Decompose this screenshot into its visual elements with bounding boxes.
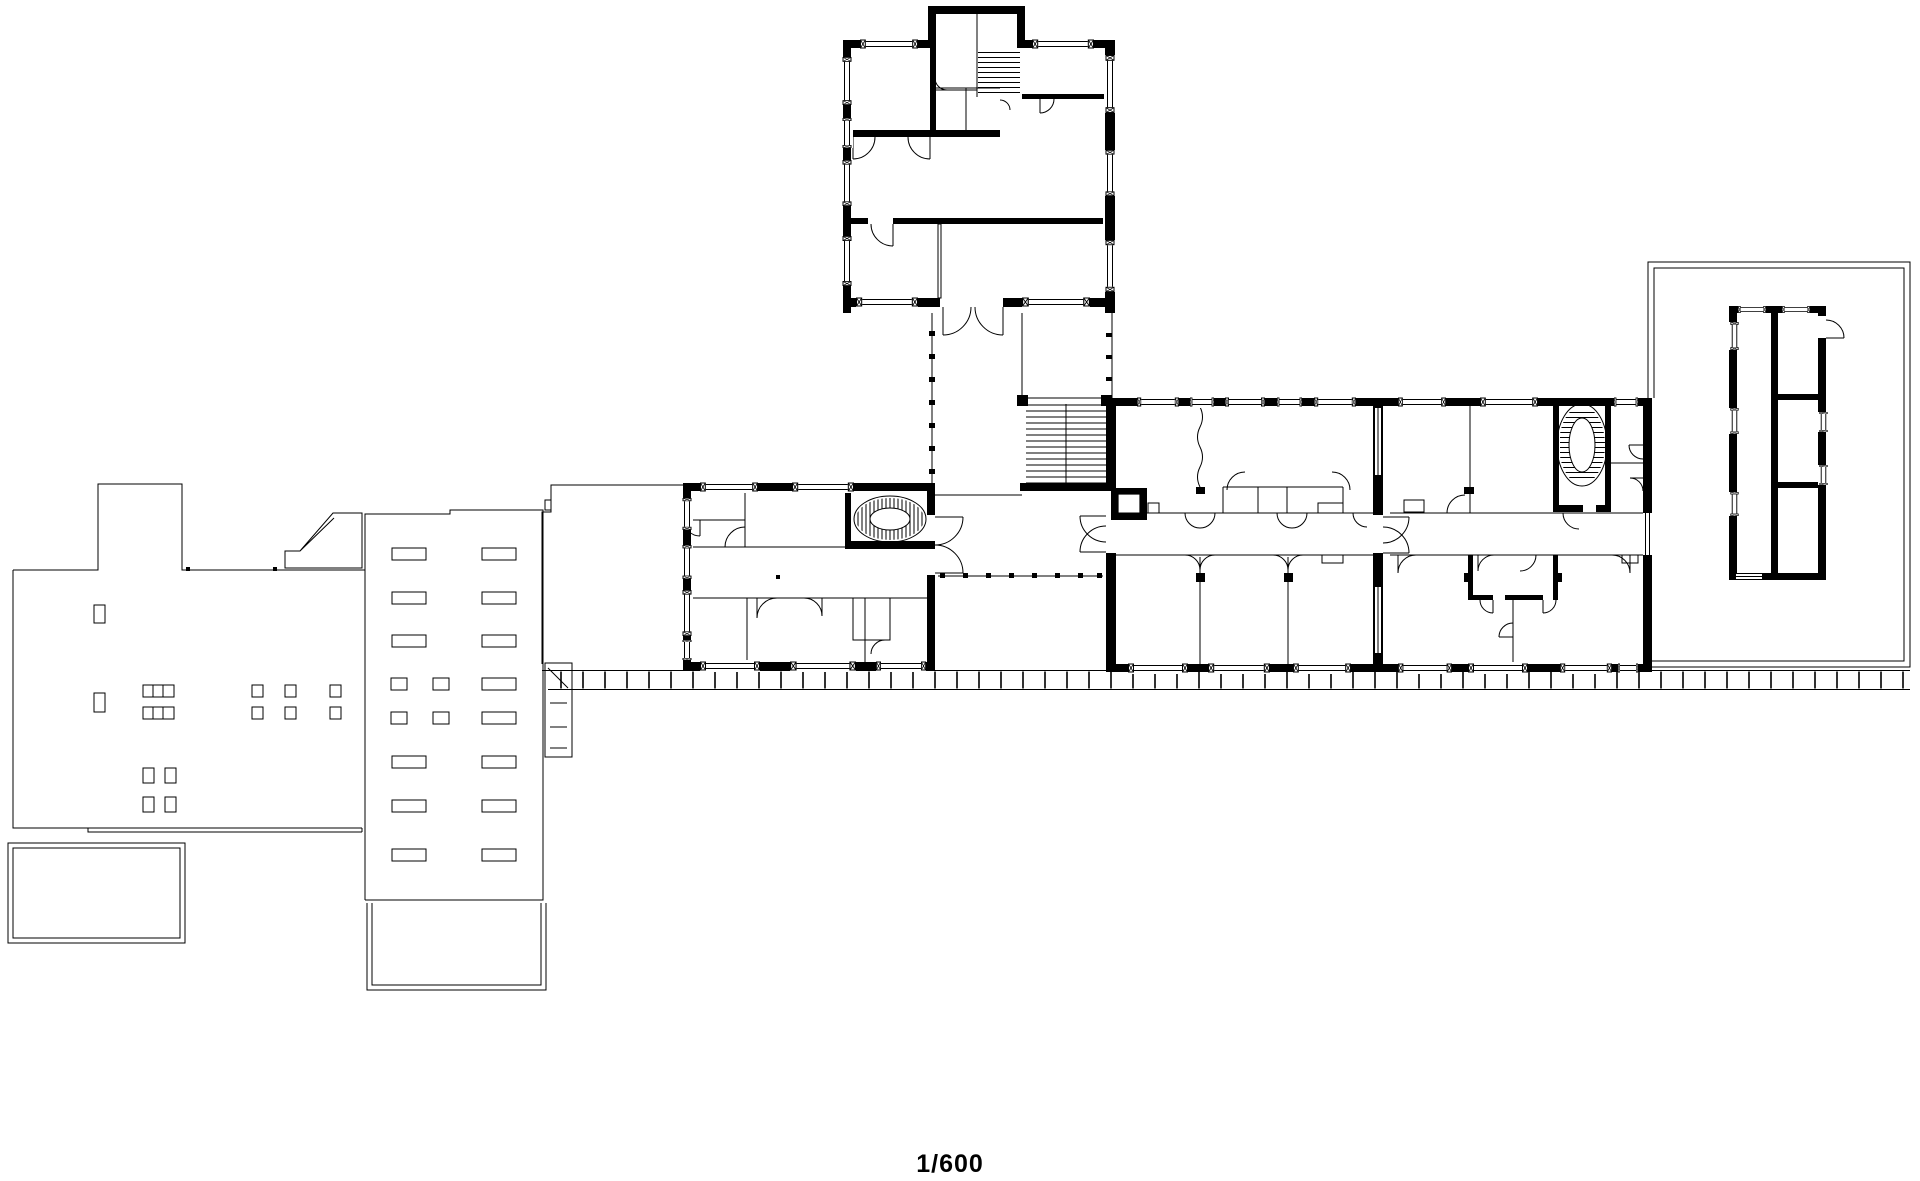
east-classroom-block <box>1383 396 1652 674</box>
elevator <box>1111 488 1147 520</box>
courtyard-outbuilding <box>1729 305 1844 580</box>
oval-staircase-west <box>845 491 935 549</box>
north-pavilion <box>841 6 1116 335</box>
west-terrace <box>542 485 683 664</box>
access-ramp <box>285 513 362 568</box>
east-courtyard <box>1648 262 1910 667</box>
floor-plan-drawing <box>0 0 1920 1181</box>
roof-stair-shaft <box>928 6 1025 97</box>
main-staircase <box>1017 395 1112 491</box>
west-classroom-block <box>681 481 963 672</box>
drawing-sheet: 1/600 <box>0 0 1920 1181</box>
central-classroom-block <box>1080 396 1383 674</box>
south-colonnade-walkway <box>542 663 1910 757</box>
u-shaped-structure <box>367 903 546 990</box>
annex-rectangle <box>8 843 185 943</box>
scale-label: 1/600 <box>880 1150 1020 1179</box>
rooflight-building <box>365 500 551 900</box>
oval-staircase-east <box>1553 404 1611 529</box>
junction-hall <box>938 573 1103 578</box>
